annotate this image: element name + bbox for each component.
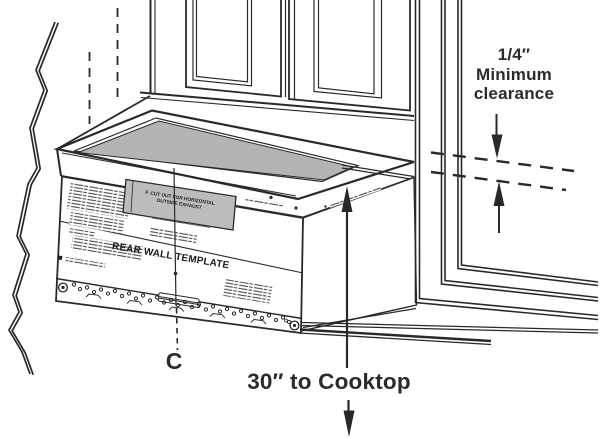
arrowhead-down-icon xyxy=(492,135,503,159)
clearance-note-line1: 1/4″ xyxy=(466,45,562,65)
clearance-dashes xyxy=(431,153,574,191)
wall-break-line xyxy=(9,22,58,375)
clearance-note-line2: Minimum xyxy=(466,65,562,85)
clearance-dimension-arrows xyxy=(492,114,505,233)
arrowhead-down-icon xyxy=(344,411,355,438)
cabinet-door-left xyxy=(186,0,286,97)
cooktop-dimension-label: 30″ to Cooktop xyxy=(236,369,422,395)
clearance-note: 1/4″ Minimum clearance xyxy=(466,45,562,104)
base-lines xyxy=(300,323,599,345)
centerline-label: C xyxy=(161,348,187,375)
hidden-edge-dashes xyxy=(90,8,118,124)
installation-diagram: 1/4″ Minimum clearance 30″ to Cooktop C … xyxy=(0,0,600,439)
cabinet-door-right xyxy=(289,0,410,111)
clearance-note-line3: clearance xyxy=(466,84,562,104)
box-side-panel xyxy=(301,178,417,332)
arrowhead-up-icon xyxy=(494,182,505,207)
